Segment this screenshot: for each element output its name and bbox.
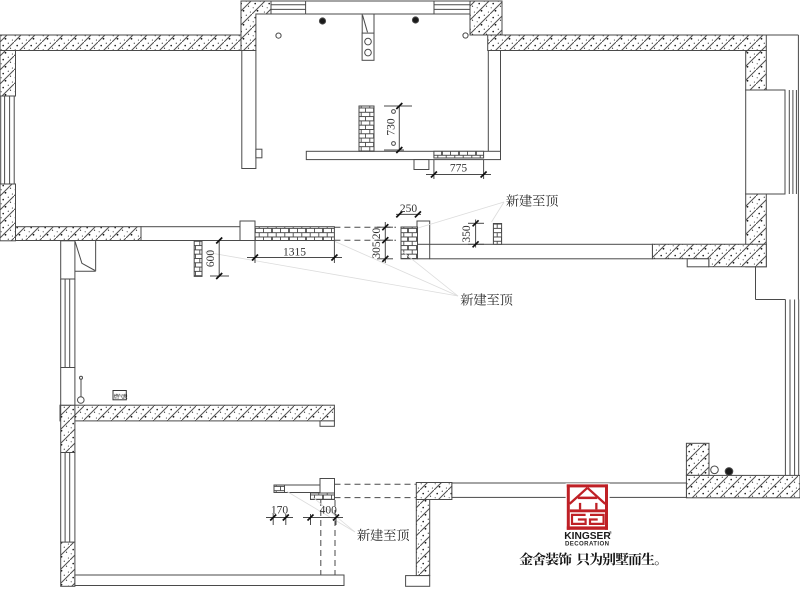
svg-text:350: 350 xyxy=(461,225,473,243)
svg-text:730: 730 xyxy=(386,118,398,136)
svg-text:400: 400 xyxy=(320,505,338,517)
svg-text:1315: 1315 xyxy=(283,247,306,259)
svg-text:20: 20 xyxy=(371,228,383,240)
svg-text:250: 250 xyxy=(400,203,418,215)
svg-text:305: 305 xyxy=(371,241,383,259)
svg-text:170: 170 xyxy=(271,505,289,517)
svg-text:775: 775 xyxy=(450,163,468,175)
svg-text:600: 600 xyxy=(205,250,217,268)
svg-text:®: ® xyxy=(609,530,612,535)
svg-text:DECORATION: DECORATION xyxy=(565,540,610,547)
